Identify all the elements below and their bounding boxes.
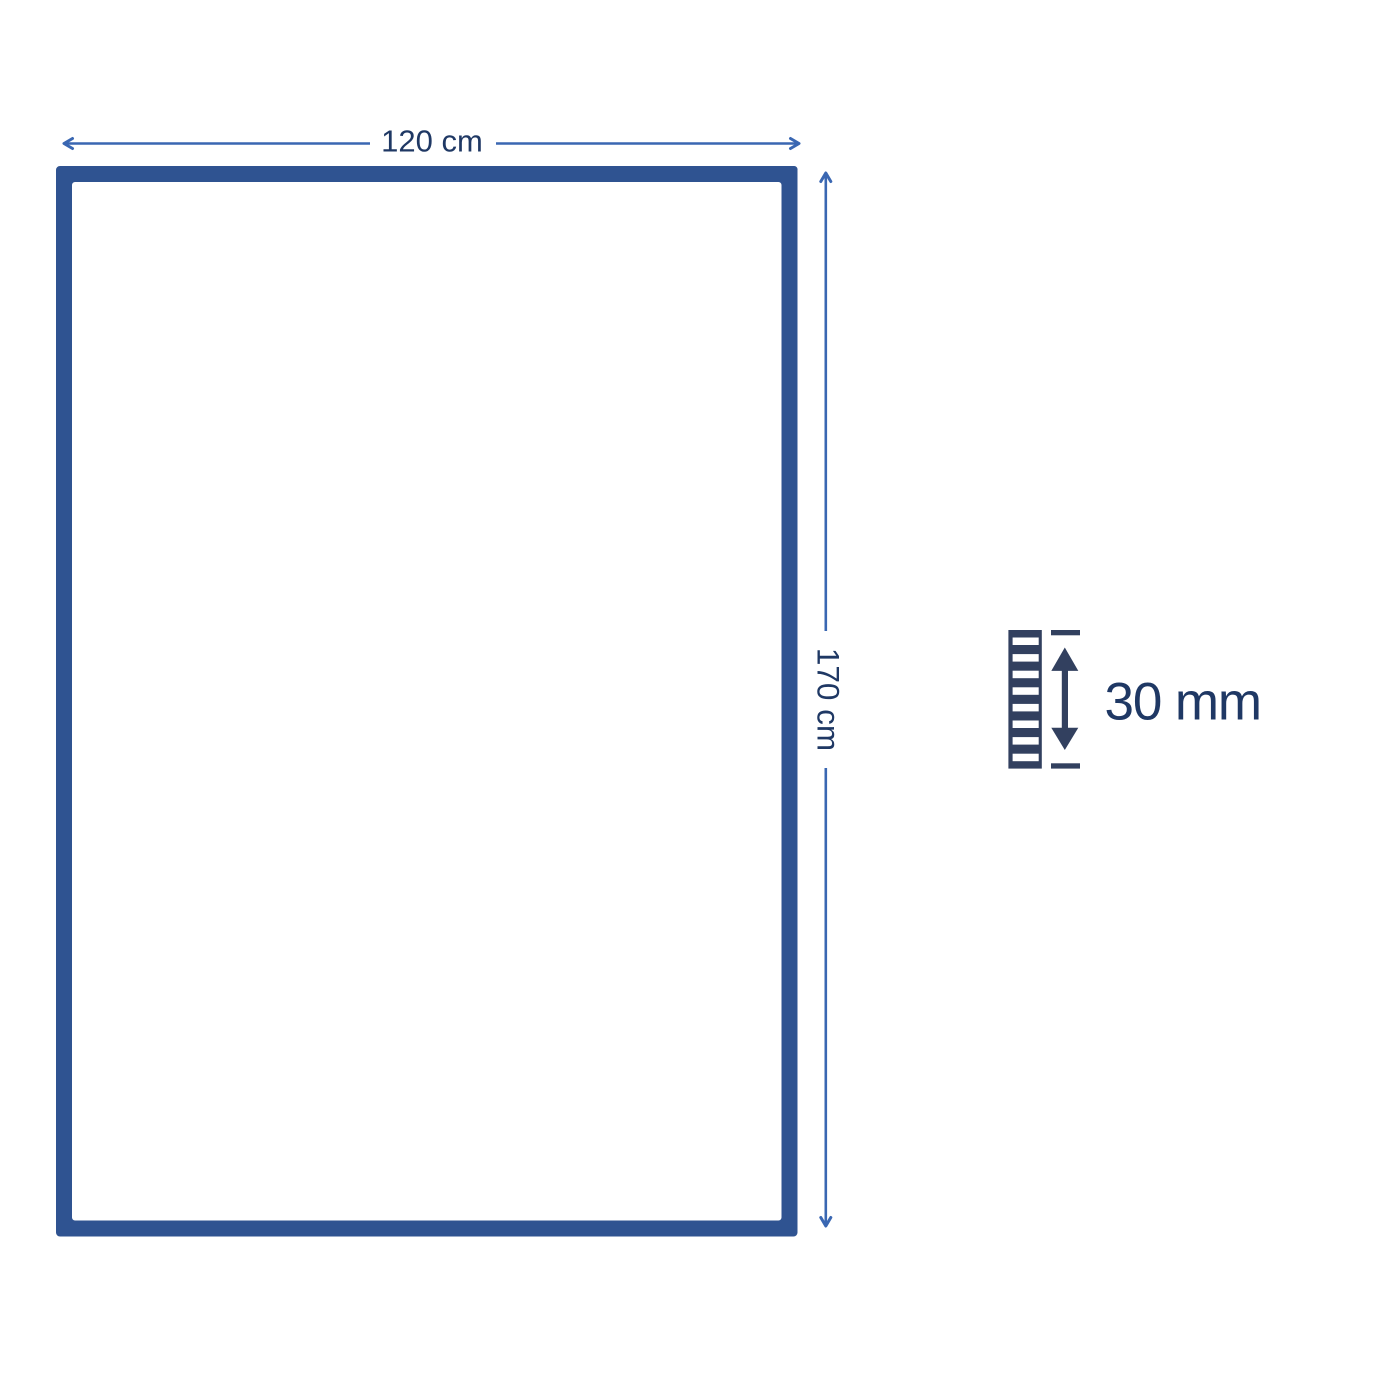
svg-text:170 cm: 170 cm [811,648,847,751]
svg-text:120 cm: 120 cm [381,124,483,159]
svg-text:30 mm: 30 mm [1105,673,1261,732]
